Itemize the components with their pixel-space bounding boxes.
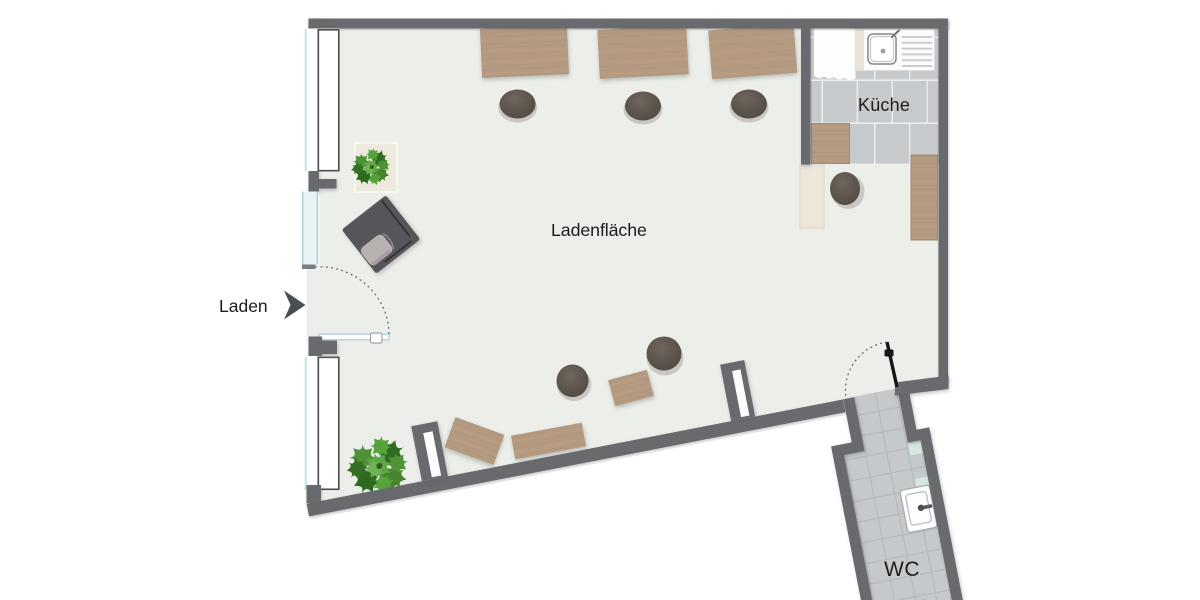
svg-text:Ladenfläche: Ladenfläche [551, 220, 647, 240]
svg-text:Laden: Laden [219, 296, 268, 316]
svg-text:Küche: Küche [858, 95, 910, 115]
svg-text:WC: WC [884, 558, 920, 581]
